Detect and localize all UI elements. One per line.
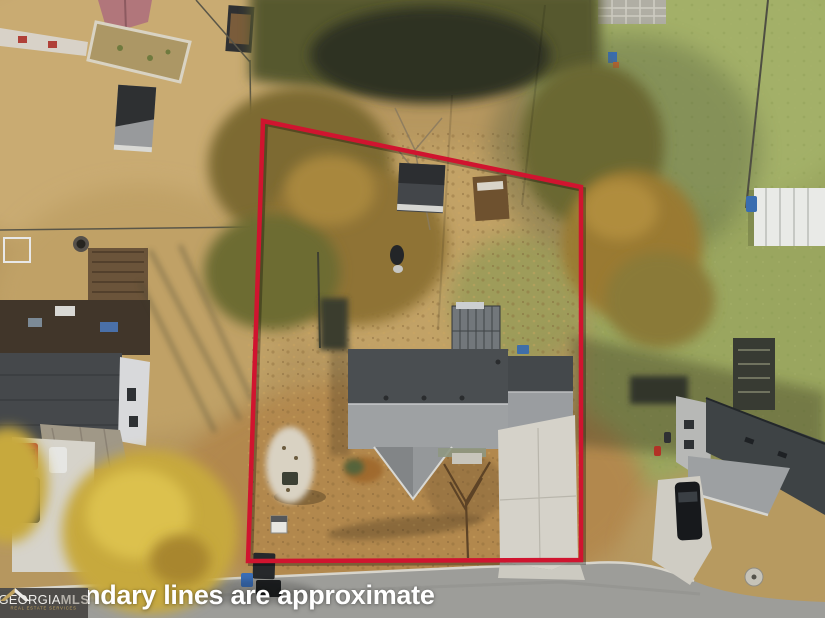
tree-shadow-dark bbox=[310, 7, 550, 103]
autumn-tree-highlight bbox=[582, 180, 658, 240]
gable-window bbox=[684, 420, 694, 429]
suv-body bbox=[675, 481, 703, 540]
aerial-photo: ndary lines are approximate GEORGIAMLS R… bbox=[0, 0, 825, 618]
yellow-tree-shade bbox=[150, 535, 210, 585]
georgia-mls-logo: GEORGIAMLS REAL ESTATE SERVICES bbox=[0, 588, 88, 618]
left-house-gable-wall bbox=[118, 357, 150, 446]
garden-plant bbox=[117, 45, 123, 51]
blue-roof-item bbox=[517, 345, 529, 354]
rock-bed-planter bbox=[282, 472, 298, 485]
gable-window bbox=[127, 388, 136, 401]
gazebo-ridge bbox=[125, 0, 126, 30]
rock-speckle bbox=[294, 456, 298, 460]
suv-windshield bbox=[678, 492, 697, 503]
slide-red-detail bbox=[48, 41, 57, 48]
rock-speckle bbox=[286, 488, 290, 492]
wood-pile bbox=[473, 175, 510, 221]
person-dark bbox=[664, 432, 671, 443]
roof-vent bbox=[422, 396, 427, 401]
white-car bbox=[49, 447, 67, 473]
white-canopy-shed bbox=[754, 188, 825, 246]
main-roof-front-slope bbox=[348, 404, 508, 449]
roof-vent bbox=[384, 396, 389, 401]
backyard-shed bbox=[397, 163, 445, 213]
house-west-shadow bbox=[330, 348, 350, 456]
grill-base bbox=[393, 265, 403, 273]
shed-roof-shadow-side bbox=[398, 163, 445, 185]
fire-pit-center bbox=[77, 240, 86, 249]
blue-barrel bbox=[746, 196, 757, 212]
subject-driveway bbox=[498, 415, 585, 580]
logo-tagline: REAL ESTATE SERVICES bbox=[11, 606, 77, 611]
mailbox-lid bbox=[271, 516, 287, 522]
person-red bbox=[654, 446, 661, 456]
roof-gable-icon bbox=[0, 588, 30, 601]
paver-patio bbox=[598, 0, 666, 24]
main-roof-back-slope bbox=[348, 349, 508, 404]
green-shrub bbox=[344, 459, 364, 475]
front-stoop bbox=[452, 453, 482, 464]
grill bbox=[390, 245, 404, 265]
logo-text-mls: MLS bbox=[61, 593, 90, 606]
slide-red-detail bbox=[18, 36, 27, 43]
dark-hedge bbox=[320, 298, 348, 350]
white-rock-bed bbox=[266, 427, 314, 503]
rock-speckle bbox=[282, 446, 286, 450]
sunroom bbox=[452, 302, 500, 356]
trailer-bed bbox=[229, 13, 251, 44]
boundary-disclaimer-text: ndary lines are approximate bbox=[84, 580, 435, 611]
gable-window bbox=[129, 416, 138, 427]
roof-vent bbox=[460, 396, 465, 401]
utility-pad-cap bbox=[752, 575, 757, 580]
roof-vent bbox=[496, 360, 501, 365]
garage-roof-back-slope bbox=[508, 356, 573, 392]
garden-plant bbox=[166, 50, 171, 55]
deck-item-white bbox=[55, 306, 75, 316]
backyard-shed-left bbox=[114, 85, 156, 152]
deck-item-gray bbox=[28, 318, 42, 327]
garden-plant bbox=[147, 55, 153, 61]
autumn-tree bbox=[605, 252, 715, 348]
blue-yard-item bbox=[608, 52, 617, 63]
deck-stairs-in-shadow bbox=[733, 338, 775, 410]
wood-lean-to bbox=[473, 175, 510, 221]
gable-window bbox=[684, 440, 694, 449]
deck-item-blue bbox=[100, 322, 118, 332]
upper-deck bbox=[88, 248, 148, 304]
autumn-tree-highlight bbox=[285, 155, 375, 225]
aerial-scene bbox=[0, 0, 825, 618]
dark-suv bbox=[675, 481, 703, 540]
sunroom-ridge-cap bbox=[456, 302, 484, 309]
trash-bin bbox=[253, 553, 276, 580]
stairs-structure bbox=[733, 338, 775, 410]
